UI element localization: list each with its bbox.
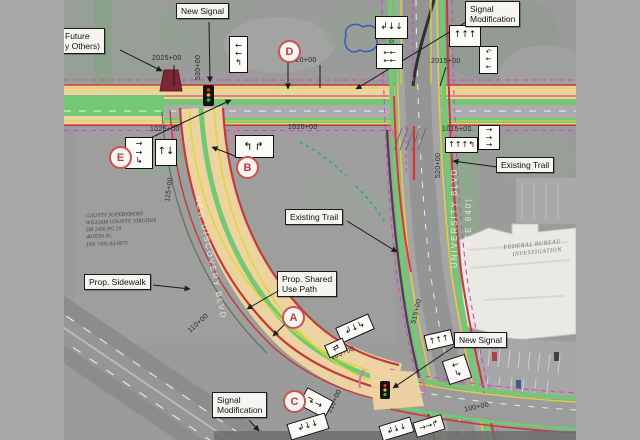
station-label-1015: 1015+00 [442, 126, 472, 133]
callout-signal-modification-top: Signal Modification [465, 1, 520, 27]
south-intersection-pavement [369, 368, 424, 410]
existing-structure [160, 70, 182, 91]
key-marker-d: D [278, 40, 301, 63]
lane-sign-southbound-turn: ↲↓↓ [375, 16, 408, 39]
station-label-1020: 1020+00 [288, 124, 318, 131]
callout-future-by-others: Future y Others) [64, 28, 105, 54]
road-name-university-route: (RTE 640) [464, 197, 473, 252]
lane-sign-eastbound-right: →→→ [478, 125, 500, 150]
key-marker-a: A [282, 306, 305, 329]
lane-sign-northbound-thru: ↑↑↑ [449, 25, 481, 47]
callout-new-signal-top: New Signal [176, 3, 229, 19]
key-marker-b: B [236, 156, 259, 179]
traffic-signal-icon-bottom [380, 381, 390, 399]
lane-sign-turn-pair: ↰↱ [235, 135, 274, 158]
lane-sign-westbound-right: ↶←← [479, 46, 498, 74]
key-marker-e: E [109, 146, 132, 169]
key-marker-c: C [283, 390, 306, 413]
lane-sign-two-way: ↑↓ [155, 139, 177, 166]
lane-sign-westbound-thru: ←←←← [376, 44, 403, 69]
station-label-1025: 1025+00 [150, 126, 180, 133]
traffic-signal-icon-top [203, 85, 214, 106]
lane-sign-westbound-left: ←←↰ [229, 36, 248, 73]
roadway-plan-map: NEW DISCOVERY BLVD UNIVERSITY BLVD (RTE … [64, 0, 576, 440]
callout-existing-trail-center: Existing Trail [285, 209, 343, 225]
callout-prop-shared-use-path: Prop. Shared Use Path [277, 271, 337, 297]
callout-existing-trail-right: Existing Trail [496, 157, 554, 173]
plan-sheet-stage: NEW DISCOVERY BLVD UNIVERSITY BLVD (RTE … [0, 0, 640, 440]
callout-new-signal-bottom: New Signal [454, 332, 507, 348]
parcel-annotation: COUNTY SUPERVISORS WILLIAM COUNTY, VIRGI… [85, 211, 157, 249]
station-label-520: 520+00 [435, 153, 442, 178]
station-label-2015: 2015+00 [431, 58, 461, 65]
lane-sign-northbound-thru-left: ↑↑↑↰ [445, 137, 478, 153]
callout-signal-modification-bottom: Signal Modification [212, 392, 267, 418]
road-name-university: UNIVERSITY BLVD [450, 168, 459, 268]
callout-prop-sidewalk: Prop. Sidewalk [84, 274, 151, 290]
station-label-2025: 2025+00 [152, 55, 182, 62]
station-label-530: 530+00 [195, 55, 202, 80]
